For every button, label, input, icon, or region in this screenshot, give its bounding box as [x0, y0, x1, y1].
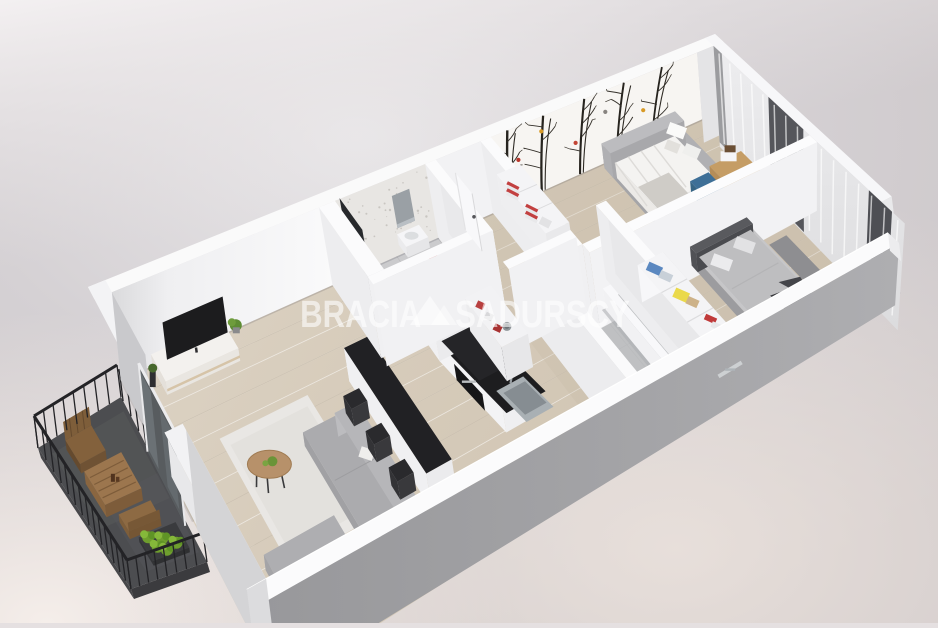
svg-text:SADURSCY: SADURSCY	[455, 294, 630, 336]
svg-text:BRACIA: BRACIA	[300, 294, 421, 336]
